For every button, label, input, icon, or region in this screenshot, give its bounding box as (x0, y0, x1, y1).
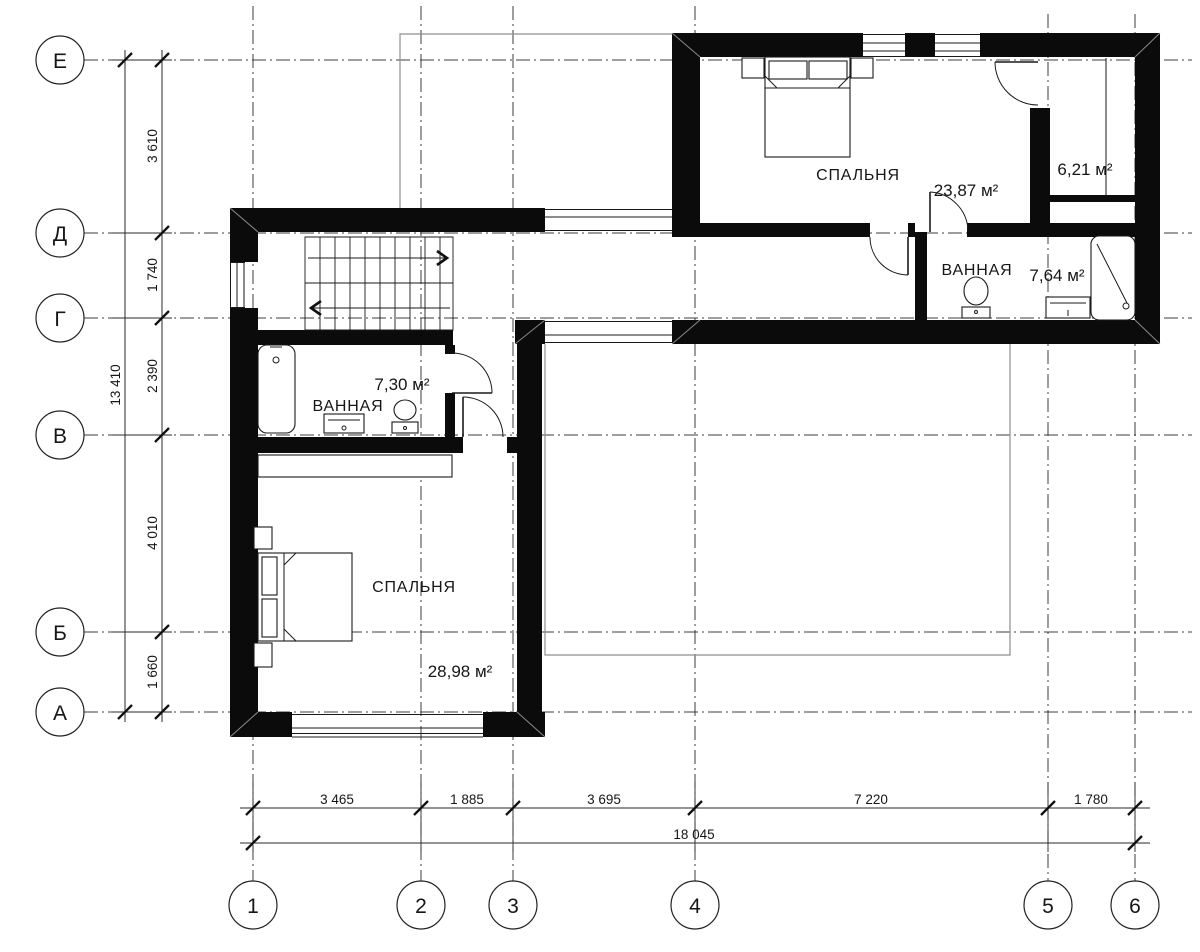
bed-bottom (254, 455, 452, 667)
door-arc-bedroom-bottom (463, 397, 503, 437)
axis-col-label: 3 (507, 895, 519, 918)
glazing-bridge-south (545, 322, 672, 343)
room-area-bedroom-top: 23,87 м² (934, 181, 999, 200)
dim-bottom-3: 7 220 (854, 792, 888, 807)
dim-bottom-4: 1 780 (1074, 792, 1108, 807)
stair-treads (320, 237, 440, 330)
axis-row-label: Е (53, 50, 67, 73)
staircase (305, 237, 453, 330)
axis-bubbles-cols: 1 2 3 4 5 6 (229, 881, 1159, 929)
window-top-1 (863, 35, 905, 57)
room-area-bedroom-bottom: 28,98 м² (428, 662, 493, 681)
pillow (809, 61, 847, 79)
room-area-closet: 6,21 м² (1057, 160, 1112, 179)
axis-row-label: Д (53, 223, 67, 246)
nightstand (742, 58, 764, 78)
room-area-bath-top: 7,64 м² (1029, 266, 1084, 285)
floor-plan-page: 3 610 1 740 2 390 4 010 1 660 13 410 3 4… (0, 0, 1200, 952)
nightstand (254, 527, 272, 549)
bathtub (258, 345, 295, 433)
pillow (262, 599, 277, 637)
axis-col-label: 5 (1042, 895, 1054, 918)
nightstand (851, 58, 873, 78)
pillow (262, 557, 277, 595)
door-arc-bedroom-top (870, 237, 908, 275)
axis-row-label: А (53, 702, 67, 725)
toilet-tank (392, 422, 418, 433)
axis-col-label: 1 (247, 895, 259, 918)
window-bedroom-bottom (292, 715, 483, 738)
door-arc-closet (995, 62, 1038, 105)
dim-left-0: 3 610 (145, 129, 160, 163)
axis-row-label: Г (54, 308, 65, 331)
room-name-bedroom-top: СПАЛЬНЯ (816, 167, 900, 184)
axis-bubbles-rows: Е Д Г В Б А (36, 36, 84, 736)
dim-left-2: 2 390 (145, 359, 160, 393)
terrace-outline-bottom (545, 344, 1010, 655)
dim-bottom-total: 18 045 (673, 827, 714, 842)
axis-col-label: 6 (1129, 895, 1141, 918)
dim-left-3: 4 010 (145, 516, 160, 550)
dim-bottom-2: 3 695 (587, 792, 621, 807)
pillow (769, 61, 807, 79)
room-labels: СПАЛЬНЯ 23,87 м² 6,21 м² ВАННАЯ 7,64 м² … (313, 160, 1113, 681)
axis-col-label: 4 (689, 895, 701, 918)
axis-row-label: В (53, 425, 67, 448)
room-name-bath-bottom: ВАННАЯ (313, 398, 384, 415)
dim-bottom-0: 3 465 (320, 792, 354, 807)
toilet-bowl (394, 400, 416, 420)
dim-bottom-1: 1 885 (450, 792, 484, 807)
wardrobe (258, 455, 452, 477)
window-top-2 (935, 35, 980, 57)
axis-row-label: Б (53, 622, 67, 645)
door-arc-bath-bottom (452, 353, 492, 393)
room-area-bath-bottom: 7,30 м² (374, 375, 429, 394)
floor-plan-canvas: 3 610 1 740 2 390 4 010 1 660 13 410 3 4… (0, 0, 1200, 952)
stair-outline (305, 237, 453, 330)
toilet-bowl (964, 277, 988, 305)
dim-left-total: 13 410 (108, 364, 123, 405)
window-left-stairhall (230, 262, 245, 308)
toilet-tank (962, 307, 990, 318)
axis-col-label: 2 (415, 895, 427, 918)
glazing-bridge-north (545, 210, 672, 231)
room-name-bedroom-bottom: СПАЛЬНЯ (372, 579, 456, 596)
dim-left-4: 1 660 (145, 655, 160, 689)
nightstand (254, 643, 272, 667)
room-name-bath-top: ВАННАЯ (942, 262, 1013, 279)
bed-top (742, 57, 873, 157)
dim-left-1: 1 740 (145, 258, 160, 292)
